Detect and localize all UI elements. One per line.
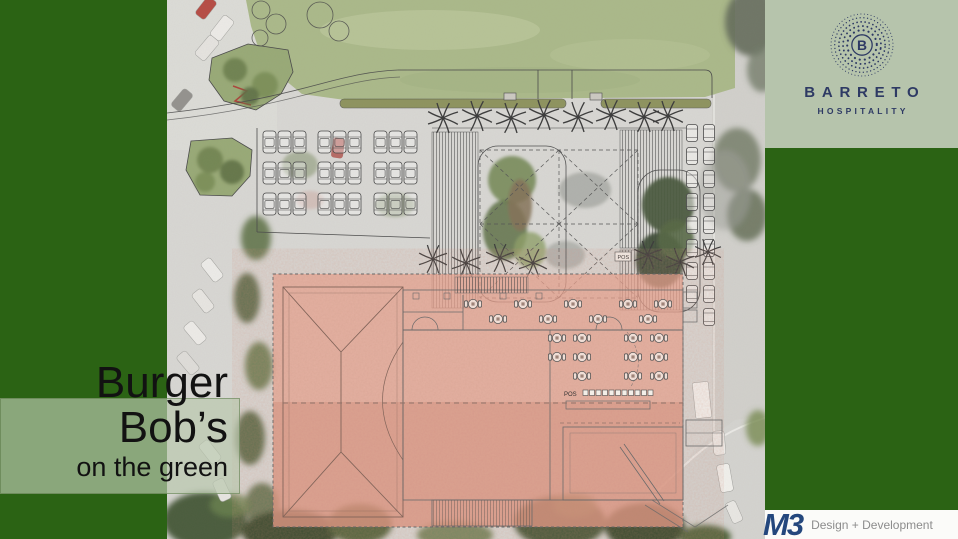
m3-logo: M3 [763, 510, 802, 539]
m3-tagline: Design + Development [811, 518, 933, 532]
barreto-tagline: HOSPITALITY [818, 106, 909, 116]
title-subtitle: on the green [0, 452, 228, 482]
barreto-name: BARRETO [804, 84, 925, 101]
barreto-monogram-icon: B [825, 8, 899, 82]
slide-title: Burger Bob’s on the green [0, 360, 228, 482]
title-line-2: Bob’s [0, 405, 228, 450]
slide: POS [0, 0, 958, 539]
barreto-monogram-letter: B [856, 37, 866, 53]
barreto-logo-box: B BARRETO HOSPITALITY [765, 0, 958, 148]
aerial-site-plan: POS [167, 0, 765, 539]
photo-grain [167, 0, 765, 539]
title-line-1: Burger [0, 360, 228, 405]
m3-strip: M3 Design + Development [765, 510, 958, 539]
